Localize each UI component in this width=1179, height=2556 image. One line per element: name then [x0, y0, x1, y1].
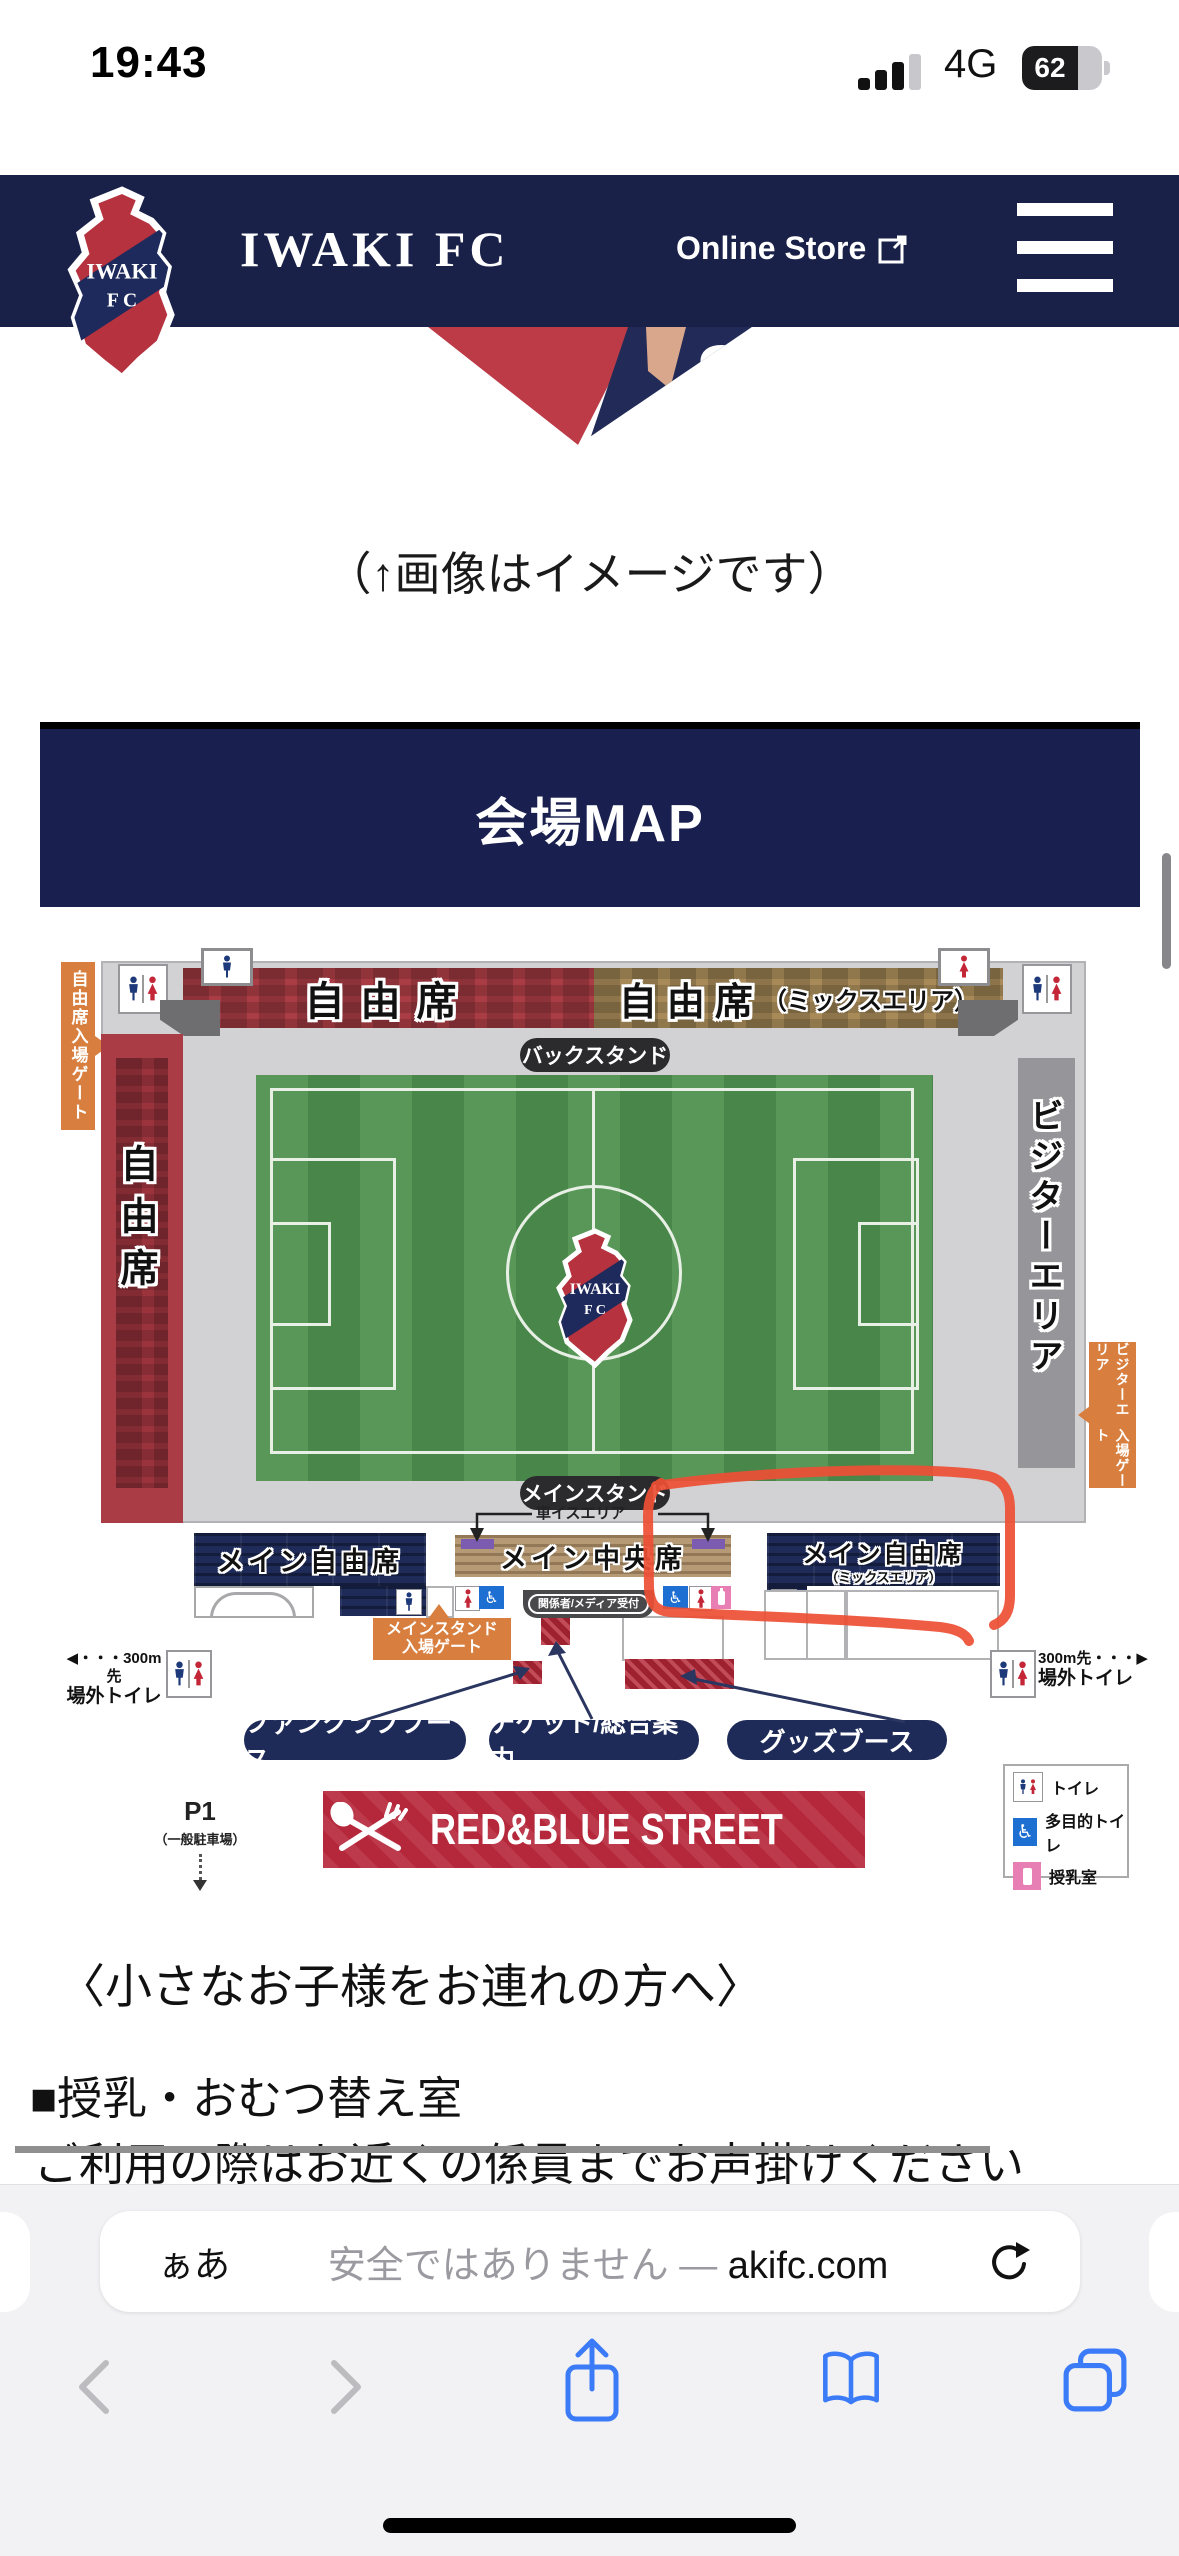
- gate-main-stand-arrow: [428, 1604, 450, 1619]
- street-banner: RED&BLUE STREET: [323, 1791, 865, 1868]
- safari-bottom-bar: ぁあ 安全ではありません — akifc.com: [0, 2185, 1179, 2556]
- stand-main-center: メイン中央席: [455, 1535, 731, 1577]
- booth-fanclub: ファンクラブブース: [244, 1720, 466, 1760]
- toilet-marker-top-right: [938, 948, 990, 986]
- venue-map-banner: 会場MAP: [40, 722, 1140, 907]
- svg-text:F C: F C: [107, 290, 137, 311]
- iphone-safari-screen: 19:43 4G 62 8: [0, 0, 1179, 2556]
- gate-free-seat: 自由席入場ゲート: [61, 962, 95, 1130]
- back-icon[interactable]: [72, 2357, 118, 2417]
- nursing-room-marker: [711, 1586, 731, 1609]
- network-type: 4G: [944, 42, 997, 87]
- stand-main-right: メイン自由席 （ミックスエリア）: [767, 1533, 1000, 1586]
- reader-button[interactable]: ぁあ: [158, 2236, 230, 2288]
- status-bar: 19:43 4G 62: [0, 0, 1179, 130]
- plaza-box-3: [764, 1590, 846, 1660]
- outside-toilet-right-icon: [990, 1650, 1036, 1698]
- svg-text:F C: F C: [584, 1303, 606, 1318]
- security-warning: 安全ではありません: [328, 2245, 669, 2287]
- booth-spot-ticket: [541, 1618, 570, 1645]
- toilet-center-right-woman: [689, 1586, 712, 1611]
- image-caption: （↑画像はイメージです）: [0, 538, 1179, 604]
- gate-main-stand: メインスタンド 入場ゲート: [373, 1618, 511, 1660]
- battery-icon: 62: [1022, 46, 1110, 90]
- url-domain: akifc.com: [728, 2245, 888, 2287]
- parking-p1: P1 （一般駐車場）: [130, 1796, 270, 1891]
- adjacent-tab-left[interactable]: [0, 2212, 30, 2312]
- gate-visitor: ビジターエリア入場ゲート: [1089, 1342, 1136, 1488]
- site-title[interactable]: IWAKI FC: [240, 220, 600, 278]
- booth-spot-fanclub: [513, 1661, 542, 1684]
- map-legend: トイレ ♿ 多目的トイレ 授乳室: [1003, 1764, 1129, 1878]
- home-indicator[interactable]: [383, 2518, 796, 2533]
- club-crest-logo[interactable]: IWAKI F C: [52, 186, 192, 382]
- plaza-box-2: [622, 1616, 724, 1661]
- tabs-icon[interactable]: [1062, 2347, 1128, 2413]
- utensils-icon: [328, 1802, 412, 1858]
- booth-ticket-info: チケット/総合案内: [489, 1720, 699, 1760]
- section-heading: 〈小さなお子様をお連れの方へ〉: [58, 1948, 763, 2017]
- legend-nursing-icon: [1013, 1862, 1041, 1890]
- share-icon[interactable]: [560, 2337, 624, 2425]
- toilet-center-right-accessible: ♿: [663, 1586, 688, 1609]
- outside-toilet-left-icon: [166, 1650, 212, 1698]
- pitch-goal-left: [270, 1222, 331, 1326]
- toilet-center-left-accessible: ♿: [479, 1586, 504, 1609]
- svg-text:IWAKI: IWAKI: [87, 258, 158, 283]
- toilet-main-left: [396, 1589, 422, 1615]
- divider-line: [15, 2146, 990, 2153]
- reception-box: 関係者/メディア受付: [523, 1590, 654, 1618]
- label-back-stand: バックスタンド: [520, 1038, 670, 1072]
- venue-map-title: 会場MAP: [475, 781, 705, 856]
- plaza-box-4: [846, 1590, 999, 1660]
- wheelchair-spot-left: [461, 1539, 494, 1549]
- legend-accessible-icon: ♿: [1013, 1818, 1037, 1846]
- pitch-goal-right: [858, 1222, 919, 1326]
- stand-visitor: ビジターエリア: [1018, 1058, 1075, 1468]
- battery-percent: 62: [1034, 52, 1065, 84]
- bookmarks-icon[interactable]: [818, 2349, 884, 2411]
- reload-icon[interactable]: [986, 2238, 1034, 2286]
- wheelchair-spot-right: [692, 1539, 725, 1549]
- section-subheading: ■授乳・おむつ替え室: [30, 2062, 462, 2127]
- online-store-label: Online Store: [676, 230, 866, 267]
- gate-visitor-arrow: [1078, 1406, 1090, 1424]
- toilet-marker-top-left: [201, 948, 253, 986]
- stand-left-free: 自由席: [101, 1034, 183, 1523]
- section-body: ご利用の際はお近くの係員までお声掛けください: [34, 2128, 1154, 2193]
- hero-image-fragment: 8: [428, 327, 752, 445]
- forward-icon[interactable]: [322, 2357, 368, 2417]
- svg-text:IWAKI: IWAKI: [570, 1281, 621, 1298]
- hero-jersey-number: 8: [696, 327, 747, 429]
- status-time: 19:43: [90, 38, 208, 88]
- pitch-crest: IWAKI F C: [531, 1228, 659, 1368]
- legend-toilet-icon: [1013, 1772, 1043, 1802]
- online-store-link[interactable]: Online Store: [676, 230, 908, 267]
- booth-spot-goods: [625, 1659, 734, 1689]
- cellular-signal-icon: [858, 52, 932, 92]
- external-link-icon: [878, 234, 908, 264]
- label-wheelchair-area: 車イスエリア: [536, 1502, 626, 1523]
- toilet-center-left-woman: [455, 1586, 480, 1611]
- tunnel-arch-box: [194, 1586, 314, 1618]
- toilet-corner-right: [1022, 964, 1072, 1014]
- url-bar[interactable]: ぁあ 安全ではありません — akifc.com: [100, 2211, 1080, 2312]
- hamburger-menu-icon[interactable]: [1017, 203, 1113, 295]
- adjacent-tab-right[interactable]: [1149, 2212, 1179, 2312]
- page-scrollbar[interactable]: [1162, 853, 1171, 969]
- outside-toilet-right: 300m先・・・▶ 場外トイレ: [1038, 1650, 1148, 1691]
- stand-main-left: メイン自由席: [194, 1533, 426, 1586]
- booth-goods: グッズブース: [727, 1720, 947, 1760]
- outside-toilet-left: ◀・・・300m先 場外トイレ: [64, 1650, 164, 1709]
